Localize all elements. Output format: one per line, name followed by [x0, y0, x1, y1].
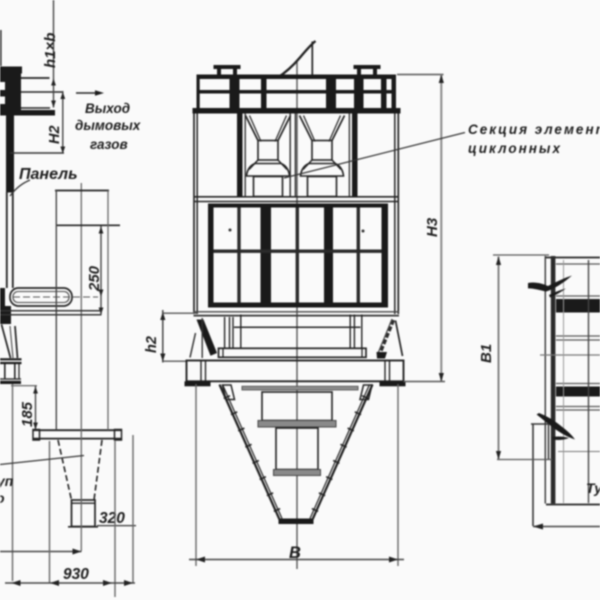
- svg-text:h1×b: h1×b: [42, 33, 59, 68]
- svg-text:Выход: Выход: [85, 101, 130, 116]
- svg-text:320: 320: [99, 510, 125, 527]
- svg-text:Н2: Н2: [47, 125, 63, 144]
- svg-text:Ту: Ту: [586, 480, 600, 496]
- svg-text:930: 930: [63, 566, 89, 583]
- svg-text:Секция элементов: Секция элементов: [468, 122, 600, 137]
- svg-text:газов: газов: [90, 137, 128, 152]
- svg-text:185: 185: [19, 401, 36, 427]
- svg-text:дымовых: дымовых: [75, 118, 141, 133]
- svg-text:циклонных: циклонных: [468, 141, 562, 156]
- svg-text:о: о: [0, 490, 5, 506]
- svg-text:250: 250: [86, 265, 103, 292]
- svg-text:В1: В1: [478, 344, 495, 363]
- svg-text:Н3: Н3: [424, 217, 441, 237]
- svg-text:В: В: [289, 544, 301, 562]
- svg-text:уп: уп: [0, 473, 14, 489]
- svg-text:h2: h2: [144, 336, 160, 353]
